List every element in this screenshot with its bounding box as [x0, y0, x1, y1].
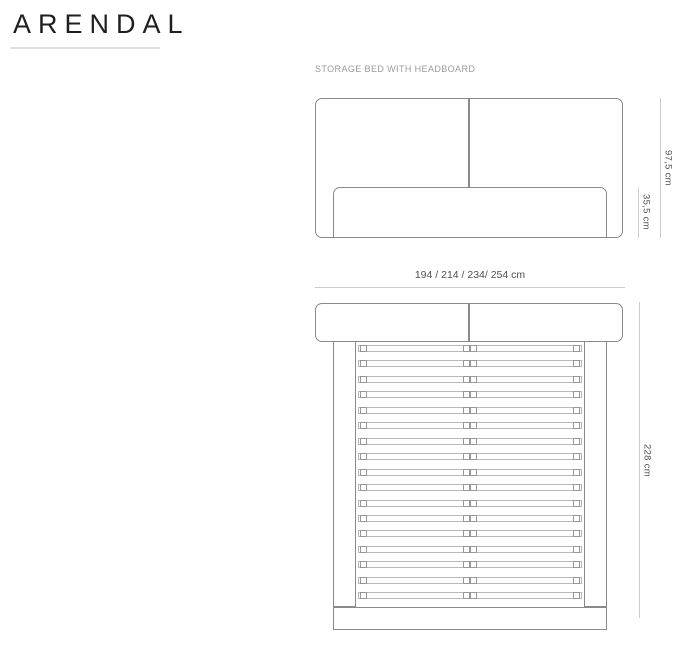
- slat-bracket: [573, 422, 580, 429]
- slat-bracket: [470, 453, 477, 460]
- slat-bracket: [573, 530, 580, 537]
- slat-bracket: [470, 360, 477, 367]
- slat-bracket: [470, 546, 477, 553]
- slat-bracket: [573, 438, 580, 445]
- slat-bracket: [360, 422, 367, 429]
- slat-bracket: [470, 515, 477, 522]
- slat-bracket: [573, 376, 580, 383]
- slat-bracket: [360, 500, 367, 507]
- slat-bracket: [360, 577, 367, 584]
- slat-bracket: [573, 345, 580, 352]
- bed-base-front-outline: [333, 187, 607, 238]
- slat-bracket: [463, 453, 470, 460]
- headboard-split-line-top: [468, 304, 470, 341]
- dimension-line-base-height: [638, 188, 639, 238]
- product-title: ARENDAL: [13, 9, 190, 40]
- slats: [358, 345, 582, 607]
- slat-bracket: [360, 546, 367, 553]
- slat-bracket: [573, 577, 580, 584]
- slat: [358, 515, 582, 522]
- slat: [358, 500, 582, 507]
- slat-bracket: [463, 438, 470, 445]
- slat-bracket: [463, 484, 470, 491]
- slat-bracket: [573, 407, 580, 414]
- slat-bracket: [470, 500, 477, 507]
- slat: [358, 438, 582, 445]
- side-rail-left: [333, 341, 356, 607]
- slat-bracket: [470, 376, 477, 383]
- slat-bracket: [463, 422, 470, 429]
- title-underline: [10, 47, 160, 49]
- slat-bracket: [573, 546, 580, 553]
- slat-bracket: [360, 391, 367, 398]
- slat-bracket: [463, 469, 470, 476]
- slat-bracket: [470, 422, 477, 429]
- slat: [358, 422, 582, 429]
- slat-bracket: [573, 360, 580, 367]
- slat: [358, 577, 582, 584]
- slat-bracket: [573, 391, 580, 398]
- slat-bracket: [470, 484, 477, 491]
- product-dimension-sheet: ARENDAL STORAGE BED WITH HEADBOARD 97,5 …: [0, 0, 690, 650]
- slat-bracket: [470, 391, 477, 398]
- slat: [358, 391, 582, 398]
- dimension-line-width: [315, 287, 625, 288]
- base-height-label: 35,5 cm: [640, 178, 652, 246]
- slat-bracket: [463, 360, 470, 367]
- slat-bracket: [360, 438, 367, 445]
- slat: [358, 469, 582, 476]
- slat-bracket: [470, 407, 477, 414]
- slat-bracket: [463, 376, 470, 383]
- slat-bracket: [573, 500, 580, 507]
- slat-bracket: [360, 407, 367, 414]
- slat: [358, 561, 582, 568]
- slat-bracket: [470, 469, 477, 476]
- slat-bracket: [470, 530, 477, 537]
- slat: [358, 546, 582, 553]
- dimension-line-length: [639, 302, 640, 618]
- slat-bracket: [463, 391, 470, 398]
- width-options-label: 194 / 214 / 234/ 254 cm: [315, 269, 625, 281]
- slat-bracket: [470, 345, 477, 352]
- slat-bracket: [470, 577, 477, 584]
- slat-bracket: [463, 561, 470, 568]
- slat-bracket: [463, 530, 470, 537]
- headboard-split-line-front: [468, 99, 470, 188]
- slat-bracket: [463, 577, 470, 584]
- slat-bracket: [573, 561, 580, 568]
- slat-bracket: [573, 592, 580, 599]
- slat-bracket: [573, 484, 580, 491]
- slat-bracket: [360, 592, 367, 599]
- slat-bracket: [573, 469, 580, 476]
- slat-bracket: [463, 500, 470, 507]
- slat-bracket: [360, 484, 367, 491]
- product-subtitle: STORAGE BED WITH HEADBOARD: [315, 64, 475, 74]
- slat: [358, 453, 582, 460]
- slat-bracket: [463, 592, 470, 599]
- slat: [358, 376, 582, 383]
- footer-rail: [333, 607, 607, 630]
- slat-bracket: [573, 453, 580, 460]
- slat-bracket: [360, 453, 367, 460]
- length-label: 228 cm: [641, 302, 653, 618]
- slat-bracket: [463, 407, 470, 414]
- slat-bracket: [360, 360, 367, 367]
- slat-bracket: [470, 592, 477, 599]
- slat: [358, 592, 582, 599]
- slat: [358, 484, 582, 491]
- dimension-line-total-height: [660, 98, 661, 238]
- slat-bracket: [470, 438, 477, 445]
- side-rail-right: [584, 341, 607, 607]
- slat-bracket: [463, 546, 470, 553]
- slat-bracket: [360, 376, 367, 383]
- total-height-label: 97,5 cm: [662, 98, 674, 238]
- slat-bracket: [360, 515, 367, 522]
- slat-bracket: [360, 469, 367, 476]
- slat: [358, 345, 582, 352]
- slat-bracket: [360, 530, 367, 537]
- slat-bracket: [573, 515, 580, 522]
- slat-bracket: [463, 345, 470, 352]
- slat-bracket: [470, 561, 477, 568]
- slat: [358, 407, 582, 414]
- slat-bracket: [360, 561, 367, 568]
- slat: [358, 530, 582, 537]
- slat-bracket: [360, 345, 367, 352]
- slat: [358, 360, 582, 367]
- slat-bracket: [463, 515, 470, 522]
